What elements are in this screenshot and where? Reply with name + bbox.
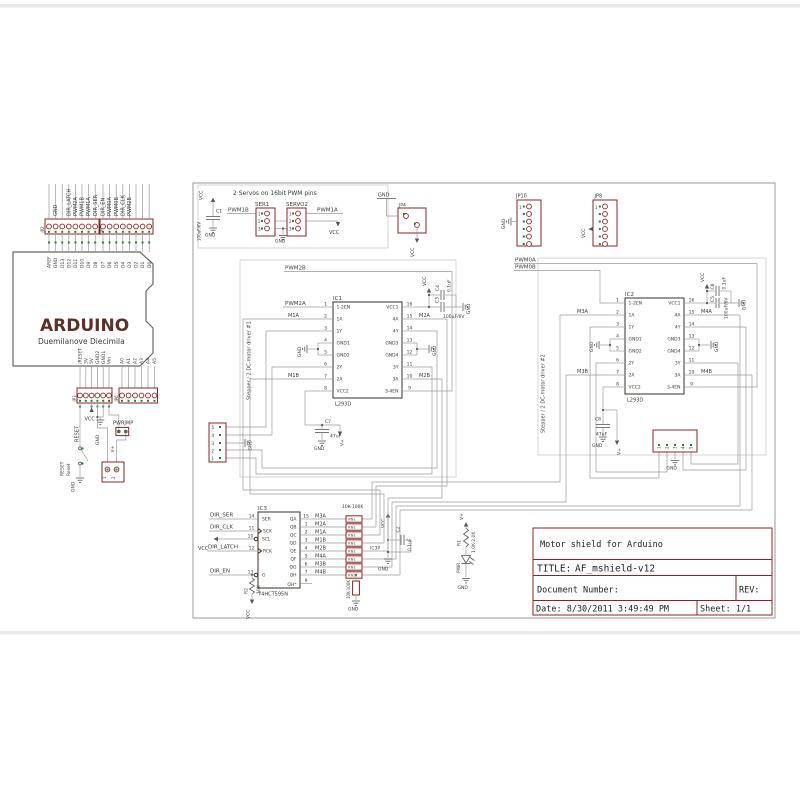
pin-name: 3A bbox=[675, 373, 682, 379]
pin-name: D10 bbox=[80, 259, 86, 268]
pin-number: 13 bbox=[407, 338, 413, 344]
pin-number: 5 bbox=[688, 446, 693, 449]
pin-name: 5V bbox=[89, 357, 95, 364]
pin-name: Vin bbox=[107, 357, 113, 364]
pin-number: 16 bbox=[689, 298, 695, 304]
schematic-page: ARDUINO Duemilanove Diecimila JP2 JP1 GN… bbox=[0, 0, 800, 800]
pin-number: 5 bbox=[305, 554, 308, 560]
net-label: M2B bbox=[419, 373, 430, 379]
cap-value: 0.1uF bbox=[447, 279, 453, 292]
net-label: M1B bbox=[288, 373, 299, 379]
pin-number: 15 bbox=[303, 514, 309, 520]
vcc-label: VCC bbox=[381, 519, 387, 528]
net-label: M3A bbox=[315, 514, 326, 520]
vcc-label: VCC bbox=[700, 273, 706, 282]
pin-number: 7 bbox=[616, 370, 619, 376]
net-label: PWM2B bbox=[285, 266, 306, 272]
pin-name: 4A bbox=[393, 317, 400, 323]
pin-number: 4 bbox=[680, 446, 685, 449]
resistor-ref: RN1 bbox=[348, 541, 355, 545]
pin-number: 14 bbox=[407, 326, 413, 332]
pin-name: SER bbox=[262, 517, 271, 523]
ic-ref: IC3P bbox=[370, 546, 380, 552]
pin-name: QA bbox=[290, 517, 298, 523]
ic-part: 74HCT595N bbox=[258, 592, 288, 598]
cap-value: 0.1uF bbox=[722, 276, 728, 289]
pin-number: 9 bbox=[305, 578, 308, 584]
pin-number: 15 bbox=[407, 314, 413, 320]
pin-name: 1Y bbox=[337, 329, 343, 335]
gnd-label: GND bbox=[592, 443, 603, 449]
arduino-subtitle: Duemilanove Diecimila bbox=[38, 337, 125, 346]
pin-number: 8 bbox=[616, 382, 619, 388]
resistor-ref: RN1 bbox=[348, 549, 355, 553]
gnd-label: GND bbox=[589, 341, 595, 352]
vplus-label: V+ bbox=[110, 445, 116, 452]
cap-ref: C3 bbox=[435, 297, 441, 303]
schematic-canvas: ARDUINO Duemilanove Diecimila JP2 JP1 GN… bbox=[0, 0, 800, 800]
gnd-label: GND bbox=[95, 434, 101, 445]
ic-ref: IC1 bbox=[333, 296, 342, 302]
pin-name: GND1 bbox=[629, 337, 642, 343]
connector-ref: SER1 bbox=[255, 202, 269, 208]
vcc-arrow bbox=[89, 408, 93, 413]
sheet-label: Sheet: 1/1 bbox=[700, 605, 751, 615]
gnd-label: GND bbox=[71, 481, 77, 492]
pin-name: 4Y bbox=[393, 329, 399, 335]
cap-value: 47uF bbox=[596, 432, 608, 438]
pin-name: GND1 bbox=[101, 351, 107, 364]
pin-number: 4 bbox=[324, 338, 327, 344]
pin-name: D2 bbox=[134, 262, 140, 268]
net-label: PWM1A bbox=[86, 197, 92, 216]
project-name: Motor shield for Arduino bbox=[540, 540, 663, 550]
pin-name: D4 bbox=[120, 262, 126, 268]
pin-name: A5 bbox=[152, 358, 158, 364]
pin-number: 13 bbox=[689, 334, 695, 340]
gnd-label: GND bbox=[248, 440, 254, 451]
resistor-value: 10K-100K bbox=[346, 580, 351, 599]
net-label: M4A bbox=[701, 309, 712, 315]
gnd-label: GND bbox=[348, 607, 359, 613]
net-label: M3B bbox=[315, 562, 326, 568]
switch-label: RESET bbox=[60, 461, 66, 476]
net-label: PWM2A bbox=[73, 197, 79, 216]
net-label: RESET bbox=[75, 425, 81, 442]
pin-number: 1 bbox=[305, 522, 308, 528]
pin-name: 3Y bbox=[675, 361, 681, 367]
board-top-pin-names: AREF GND D13 D12 D11 D10 D9 D8 D7 D6 D5 … bbox=[47, 256, 153, 268]
pin-name: VCC1 bbox=[386, 305, 398, 311]
cap-value: 100uF/6V bbox=[197, 222, 202, 241]
net-label: M2A bbox=[315, 522, 326, 528]
switch-contact bbox=[79, 462, 82, 465]
pin-number: 10 bbox=[689, 370, 695, 376]
pin-number: 4 bbox=[305, 546, 308, 552]
cap-ref: C8 bbox=[595, 417, 601, 423]
vcc-label: VCC bbox=[199, 191, 205, 200]
pin-name: QC bbox=[290, 533, 297, 539]
cap-value: 100uF/6V bbox=[443, 314, 465, 320]
pin-name: VCC2 bbox=[629, 385, 641, 391]
net-label: PWM2B bbox=[127, 197, 133, 216]
pin-name: GND2 bbox=[629, 349, 642, 355]
wires bbox=[80, 403, 126, 477]
net-label: M2A bbox=[419, 313, 430, 319]
resistor-ref: RN1 bbox=[348, 517, 355, 521]
title-label: TITLE: bbox=[537, 564, 571, 575]
net-label: DIR_CLK bbox=[210, 525, 233, 531]
pin-name: GND2 bbox=[95, 351, 101, 364]
net-label: M1A bbox=[288, 313, 299, 319]
net-label: M1B bbox=[315, 538, 326, 544]
pin-name: 1-2EN bbox=[337, 305, 351, 311]
pin-name: QE bbox=[290, 549, 297, 555]
arduino-power-reset: RESET VCC GND PWRJMP V+ RESET Reset GND … bbox=[60, 403, 134, 492]
bottom-headers: JP3 JP6 bbox=[72, 366, 158, 408]
connector-ref: JP4 bbox=[398, 203, 406, 209]
connector-ref: JP10 bbox=[515, 194, 527, 200]
top-header-wires bbox=[49, 184, 149, 252]
pin-name: SCK bbox=[263, 529, 273, 535]
pin-name: A1 bbox=[126, 358, 132, 364]
connector-ref: SERVO2 bbox=[286, 202, 308, 208]
board-bottom-pin-names: /RESET 3V 5V GND2 GND1 Vin A0 A1 A2 A3 A… bbox=[78, 348, 159, 364]
gnd-symbol bbox=[76, 478, 84, 482]
pin-name: GND3 bbox=[385, 341, 398, 347]
pin-name: D6 bbox=[107, 262, 113, 268]
resistor-ref: RN1 bbox=[348, 565, 355, 569]
cap-value: 47uF bbox=[330, 434, 342, 440]
vplus-label: V+ bbox=[617, 448, 623, 455]
ic-part: L293D bbox=[335, 402, 351, 408]
pin-name: A4 bbox=[146, 358, 152, 364]
driver2-caption: Stepper / 2 DC-motor driver #2 bbox=[541, 354, 547, 433]
connector-ref: JP8 bbox=[594, 194, 603, 200]
cap-ref: C5 bbox=[710, 296, 716, 302]
pin-number: 1 bbox=[656, 446, 661, 449]
pin-number: 7 bbox=[324, 374, 327, 380]
net-label: DIR_SER bbox=[210, 513, 233, 519]
resistor-ref: R2 bbox=[244, 588, 250, 594]
pin-name: 2A bbox=[629, 373, 636, 379]
cap-ref: C1 bbox=[216, 209, 222, 215]
pin-number: 10 bbox=[407, 374, 413, 380]
gnd-label: GND bbox=[297, 346, 303, 357]
pin-number: 11 bbox=[407, 362, 413, 368]
gnd-label: GND bbox=[458, 585, 469, 591]
pin-name: 3-4EN bbox=[385, 389, 399, 395]
pin-name: 3Y bbox=[393, 365, 399, 371]
vcc-label: VCC bbox=[246, 610, 252, 619]
vcc-label: VCC bbox=[329, 230, 340, 236]
pin-name: A0 bbox=[120, 358, 126, 364]
pin-name: D11 bbox=[73, 259, 79, 268]
pin-number: 12 bbox=[249, 546, 255, 552]
net-label: PWM0A bbox=[515, 258, 536, 264]
pin-name: 2A bbox=[337, 377, 344, 383]
net-label: M3B bbox=[577, 369, 588, 375]
pin-name: GND4 bbox=[385, 353, 398, 359]
pin-name: 2Y bbox=[337, 365, 343, 371]
vplus-label: V+ bbox=[459, 513, 465, 520]
pin-number: 2 bbox=[305, 530, 308, 536]
resistor-ref: RN1 bbox=[348, 525, 355, 529]
pin-number: 6 bbox=[616, 358, 619, 364]
net-label: M4A bbox=[315, 554, 326, 560]
doc-number-label: Document Number: bbox=[537, 586, 619, 596]
net-label: PWM0A bbox=[107, 197, 113, 216]
cap-ref: C2 bbox=[396, 526, 402, 532]
pin-name: 2Y bbox=[629, 361, 635, 367]
arduino-title: ARDUINO bbox=[40, 316, 129, 336]
pin-number: 4 bbox=[616, 334, 619, 340]
pin-name: QB bbox=[290, 525, 297, 531]
pin-name: SCL bbox=[262, 537, 271, 543]
net-label: PWM1B bbox=[80, 197, 86, 216]
pin-number: 3 bbox=[616, 322, 619, 328]
pin-name: 3V bbox=[83, 357, 89, 364]
pin-number: 12 bbox=[689, 346, 695, 352]
top-net-labels: GND DIR_LATCH PWM2A PWM1B PWM1A DIR_SER … bbox=[53, 189, 133, 216]
pin-name: AREF bbox=[47, 256, 53, 268]
pin-name: 1Y bbox=[629, 325, 635, 331]
cap-value: 100uF/6V bbox=[724, 297, 730, 319]
net-label: M4B bbox=[701, 369, 712, 375]
net-label: M1A bbox=[315, 530, 326, 536]
pin-number: 3 bbox=[305, 538, 308, 544]
pwrjmp-label: PWRJMP bbox=[113, 421, 133, 427]
net-label: PWM0B bbox=[114, 197, 120, 216]
header-ref: JP2 bbox=[40, 226, 45, 234]
ic-ref: IC2 bbox=[625, 292, 634, 298]
pin-name: GND bbox=[53, 257, 59, 268]
gnd-label: GND bbox=[714, 341, 720, 352]
terminal-pin: 2 bbox=[111, 476, 116, 479]
header-ref: JP6 bbox=[114, 395, 119, 403]
bottom-header-wires bbox=[80, 366, 155, 388]
pin-number: 9 bbox=[690, 382, 693, 388]
pin-number: 2 bbox=[664, 446, 669, 449]
header-ref: JP3 bbox=[72, 395, 77, 403]
resistor-value: 10K bbox=[256, 584, 262, 594]
pin-name: QD bbox=[289, 541, 297, 547]
arduino-board: ARDUINO Duemilanove Diecimila JP2 JP1 GN… bbox=[13, 184, 158, 492]
switch-contact bbox=[79, 447, 82, 450]
pin-name: 4A bbox=[675, 313, 682, 319]
pin-name: QH bbox=[290, 573, 297, 579]
pin-number: 7 bbox=[305, 570, 308, 576]
gnd-label: GND bbox=[432, 345, 438, 356]
pin-number: 1 bbox=[616, 298, 619, 304]
schematic-title: AF_mshield-v12 bbox=[575, 564, 655, 575]
pin-name: /RESET bbox=[78, 348, 84, 364]
net-label: DIR_CLK bbox=[120, 194, 126, 216]
pin-name: QH* bbox=[287, 582, 297, 588]
pin-number: 16 bbox=[407, 302, 413, 308]
rn-value-header: 10K-100K bbox=[342, 504, 364, 510]
pin-number: 2 bbox=[616, 310, 619, 316]
pin-name: GND2 bbox=[337, 353, 350, 359]
gnd-label: GND bbox=[501, 218, 507, 229]
pin-name: D8 bbox=[93, 262, 99, 268]
pin-name: A3 bbox=[139, 358, 145, 364]
pin-number: 5 bbox=[616, 346, 619, 352]
date-label: Date: 8/30/2011 3:49:49 PM bbox=[536, 605, 669, 615]
resistor-ref: RN1 bbox=[348, 573, 355, 577]
pin-name: D1 bbox=[140, 262, 146, 268]
net-label: PWM1B bbox=[228, 208, 249, 214]
gnd-label: GND bbox=[667, 466, 678, 472]
pin-number: 10 bbox=[248, 534, 254, 540]
gnd-label: GND bbox=[378, 567, 389, 573]
net-label: M3A bbox=[577, 309, 588, 315]
pin-number: 2 bbox=[324, 314, 327, 320]
led-label: PWR bbox=[456, 563, 462, 573]
net-label: GND bbox=[53, 204, 59, 216]
pin-number: 6 bbox=[305, 562, 308, 568]
pin-name: GND3 bbox=[667, 337, 680, 343]
rev-label: REV: bbox=[739, 586, 759, 596]
pin-name: D7 bbox=[101, 262, 107, 268]
net-label: PWM2A bbox=[285, 301, 306, 307]
pin-name: 1A bbox=[629, 313, 636, 319]
pin-number: 14 bbox=[249, 514, 255, 520]
pin-number: 14 bbox=[689, 322, 695, 328]
pin-name: 1-2EN bbox=[629, 301, 643, 307]
net-label: M4B bbox=[315, 570, 326, 576]
pin-number: 1 bbox=[324, 302, 327, 308]
net-label: DIR_EN bbox=[210, 569, 230, 575]
gnd-label: GND bbox=[205, 233, 216, 239]
pin-name: RCK bbox=[263, 549, 273, 555]
pin-number: 3 bbox=[672, 446, 677, 449]
pin-number: 11 bbox=[689, 358, 695, 364]
vplus-label: V+ bbox=[340, 439, 346, 446]
pin-name: 3A bbox=[393, 377, 400, 383]
pin-number: 3 bbox=[324, 326, 327, 332]
servo-caption: 2 Servos on 16bit PWM pins bbox=[233, 190, 317, 197]
pin-name: D9 bbox=[86, 262, 92, 268]
pin-name: G bbox=[262, 573, 266, 579]
vcc-label: VCC bbox=[422, 277, 428, 286]
pin-number: 9 bbox=[408, 386, 411, 392]
resistor-ref: RN1 bbox=[348, 557, 355, 561]
pin-name: VCC2 bbox=[337, 389, 349, 395]
switch-label: Reset bbox=[66, 463, 72, 476]
net-label: DIR_LATCH bbox=[66, 189, 72, 216]
cap-ref: C4 bbox=[435, 285, 441, 291]
top-headers: JP2 JP1 bbox=[40, 184, 153, 252]
pin-name: GND4 bbox=[667, 349, 680, 355]
pin-number: 11 bbox=[249, 526, 255, 532]
gnd-label: GND bbox=[314, 446, 325, 452]
driver1-caption: Stepper / 2 DC-motor driver #1 bbox=[247, 321, 253, 400]
pin-number: 5 bbox=[324, 350, 327, 356]
net-label: PWM0B bbox=[515, 265, 536, 271]
cap-ref: C7 bbox=[325, 419, 331, 425]
pin-name: 3-4EN bbox=[667, 385, 681, 391]
pin-name: QG bbox=[289, 565, 297, 571]
pin-name: QF bbox=[290, 557, 297, 563]
vcc-label: VCC bbox=[581, 229, 587, 238]
resistor-ref: RN1 bbox=[348, 533, 355, 537]
resistor-value: 1.0K-2.0K bbox=[471, 531, 477, 553]
vcc-label: VCC bbox=[85, 417, 96, 423]
pin-name: D13 bbox=[60, 259, 66, 268]
net-label: PWM1A bbox=[317, 208, 338, 214]
net-label: DIR_EN bbox=[101, 198, 107, 216]
pin-number: 12 bbox=[407, 350, 413, 356]
pin-name: D12 bbox=[66, 259, 72, 268]
pin-number: 6 bbox=[324, 362, 327, 368]
ic-part: L293D bbox=[627, 398, 643, 404]
gnd-label: GND bbox=[378, 193, 390, 199]
pin-name: 1A bbox=[337, 317, 344, 323]
net-label: M2B bbox=[315, 546, 326, 552]
pin-name: 4Y bbox=[675, 325, 681, 331]
pin-name: GND1 bbox=[337, 341, 350, 347]
terminal-pin: 1 bbox=[102, 476, 107, 479]
pin-name: D5 bbox=[114, 262, 120, 268]
cap-value: 0.1uF bbox=[407, 538, 413, 551]
net-label: DIR_LATCH bbox=[208, 545, 238, 551]
gnd-label: GND bbox=[275, 239, 286, 245]
gnd-label: GND bbox=[466, 303, 472, 314]
pin-name: D0 bbox=[147, 262, 153, 268]
ic-ref: IC3 bbox=[258, 506, 267, 512]
pin-name: A2 bbox=[133, 358, 139, 364]
resistor-ref: R1 bbox=[457, 540, 463, 546]
cap-ref: C6 bbox=[710, 283, 716, 289]
pin-name: D3 bbox=[127, 262, 133, 268]
pin-number: 15 bbox=[689, 310, 695, 316]
gnd-label: GND bbox=[742, 299, 748, 310]
net-label: DIR_SER bbox=[93, 194, 99, 216]
pin-number: 8 bbox=[324, 386, 327, 392]
vcc-label: VCC bbox=[410, 248, 416, 257]
pin-name: VCC1 bbox=[668, 301, 680, 307]
